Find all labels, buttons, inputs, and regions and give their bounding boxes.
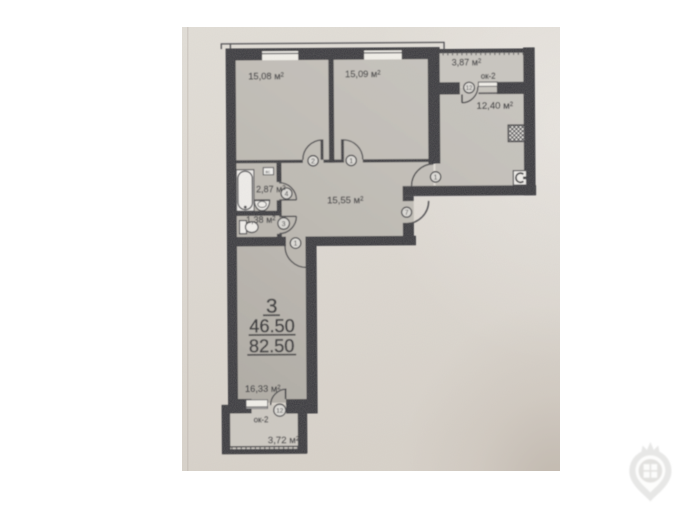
svg-text:вс: вс: [265, 169, 270, 174]
svg-text:3: 3: [266, 295, 278, 318]
svg-text:82.50: 82.50: [249, 336, 295, 356]
svg-text:ок-2: ок-2: [254, 415, 269, 424]
svg-text:1: 1: [434, 174, 438, 181]
svg-text:2,87 м2: 2,87 м2: [256, 184, 286, 194]
svg-text:2: 2: [311, 158, 315, 165]
svg-text:1: 1: [349, 158, 353, 165]
svg-text:12,40 м2: 12,40 м2: [476, 101, 513, 112]
svg-text:1: 1: [294, 241, 298, 248]
svg-text:46.50: 46.50: [249, 316, 295, 336]
svg-text:7: 7: [405, 210, 409, 217]
svg-text:12: 12: [466, 86, 473, 92]
svg-text:3,87 м2: 3,87 м2: [452, 57, 482, 67]
svg-text:12: 12: [276, 408, 284, 415]
svg-text:16,33 м2: 16,33 м2: [245, 383, 281, 393]
svg-text:15,09 м2: 15,09 м2: [345, 69, 381, 79]
svg-text:15,55 м2: 15,55 м2: [327, 195, 364, 206]
svg-text:3,72 м2: 3,72 м2: [268, 435, 300, 446]
svg-text:3: 3: [282, 221, 286, 228]
svg-text:4: 4: [285, 191, 289, 198]
svg-text:15,08 м2: 15,08 м2: [248, 71, 284, 81]
svg-text:ок-2: ок-2: [481, 71, 496, 80]
svg-text:1,38 м2: 1,38 м2: [246, 215, 276, 225]
